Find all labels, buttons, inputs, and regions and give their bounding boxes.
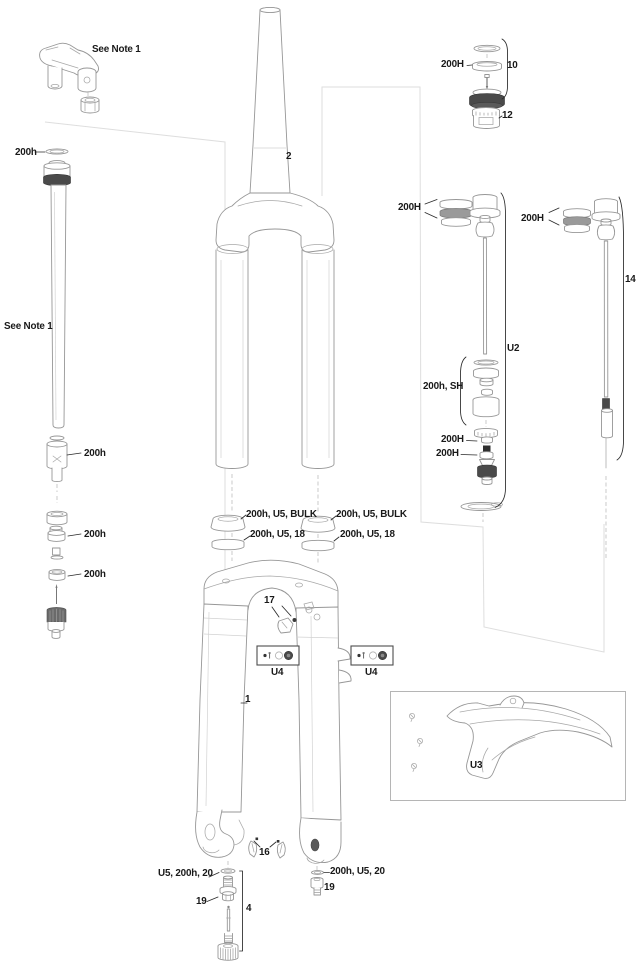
label-dust-seal-right: 200h, U5, BULK (336, 509, 407, 520)
spring-shaft-drawing (564, 199, 621, 558)
label-foam-ring-right: 200h, U5, 18 (340, 529, 395, 540)
label-sealhead: 200h, SH (423, 381, 463, 392)
label-guide-17: 17 (264, 595, 275, 606)
label-right-rings: 200H (521, 213, 544, 224)
glide-rings-mid (440, 200, 472, 227)
label-see-note-left: See Note 1 (4, 321, 53, 332)
label-bolt-left-19: 19 (196, 896, 207, 907)
air-spring-assembly-drawing (44, 149, 71, 638)
rebound-hardware-right-drawing (311, 871, 324, 895)
label-group-10: 10 (507, 60, 518, 71)
cable-guide-17-drawing (278, 618, 297, 633)
sealhead-group-drawing (473, 360, 499, 427)
label-ring-low1: 200h (84, 529, 106, 540)
glide-rings-right (564, 209, 591, 233)
u3-fender-box (391, 692, 626, 801)
exploded-parts-diagram: See Note 1 200h See Note 1 200h 200h 200… (0, 0, 640, 967)
rebound-hardware-left-drawing (218, 869, 238, 961)
label-piston-ring: 200h (84, 448, 106, 459)
label-lowers-1: 1 (245, 694, 250, 705)
label-shim-b: 200H (436, 448, 459, 459)
label-u4-right: U4 (365, 667, 377, 678)
label-u3: U3 (470, 760, 482, 771)
label-clips-16: 16 (259, 847, 270, 858)
remote-lockout-drawing (40, 43, 99, 97)
label-see-note-top: See Note 1 (92, 44, 141, 55)
label-washer-right: 200h, U5, 20 (330, 866, 385, 877)
label-group-14: 14 (625, 274, 636, 285)
damper-shaft-drawing (440, 195, 500, 355)
label-foam-ring-left: 200h, U5, 18 (250, 529, 305, 540)
label-group-u2: U2 (507, 343, 519, 354)
top-cap-group-drawing (470, 45, 505, 128)
label-cap-ring: 200H (441, 59, 464, 70)
label-u4-left: U4 (271, 667, 283, 678)
label-dust-seal-left: 200h, U5, BULK (246, 509, 317, 520)
csu-drawing (216, 7, 334, 563)
label-shim-a: 200H (441, 434, 464, 445)
label-group-4: 4 (246, 903, 251, 914)
u4-hardware-box-left (257, 646, 299, 665)
label-seal-top: 200h (15, 147, 37, 158)
label-bolt-right-19: 19 (324, 882, 335, 893)
label-ring-low2: 200h (84, 569, 106, 580)
hex-fitting-drawing (81, 97, 99, 113)
exploded-diagram-art (0, 0, 640, 967)
label-washer-left: U5, 200h, 20 (158, 868, 213, 879)
shim-stack-drawing (461, 428, 503, 522)
label-steerer-num: 2 (286, 151, 291, 162)
label-part-12: 12 (502, 110, 513, 121)
lowers-drawing (196, 560, 352, 871)
u4-hardware-box-right (351, 646, 393, 665)
label-mid-rings: 200H (398, 202, 421, 213)
